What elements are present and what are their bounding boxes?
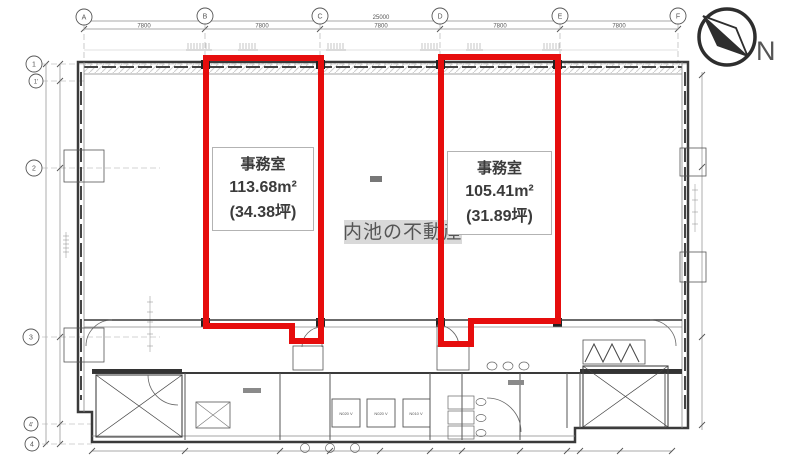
dim-bay-2: 7800: [255, 24, 269, 30]
toilet-fixtures: [301, 362, 530, 453]
dim-bay-5: 7800: [612, 24, 626, 30]
building-outline: [78, 60, 688, 442]
pad-label-3: N010 V: [409, 411, 423, 416]
compass: N: [699, 9, 776, 66]
dim-bay-4: 7800: [493, 24, 507, 30]
stairs: [583, 340, 645, 364]
room-type-left: 事務室: [240, 153, 285, 176]
dim-overall: 25000: [373, 15, 390, 21]
room-area-sqm-right: 105.41m²: [465, 180, 534, 205]
floor-plan-drawing: A B C D E F 1 1' 2 3 4' 4: [0, 0, 800, 456]
room-area-sqm-left: 113.68m²: [229, 176, 297, 201]
grid-bubble-1p: 1': [34, 80, 38, 86]
dim-bay-3: 7800: [374, 24, 388, 30]
grid-bubble-a: A: [82, 15, 87, 22]
core-partitions: [64, 148, 706, 440]
pad-label-2: N020 V: [374, 411, 388, 416]
grid-bubble-f: F: [676, 14, 680, 21]
room-type-right: 事務室: [477, 157, 522, 180]
grid-bubble-4p: 4': [29, 423, 33, 429]
grid-row-bubbles: 1 1' 2 3 4' 4: [23, 56, 43, 451]
floor-plan-page: A B C D E F 1 1' 2 3 4' 4: [0, 0, 800, 456]
watermark-text: 内池の不動産: [343, 221, 463, 243]
compass-needle-outline-icon: [703, 16, 748, 57]
grid-bubble-c: C: [317, 14, 322, 21]
grid-bubble-2: 2: [32, 166, 36, 173]
compass-north-label: N: [756, 36, 776, 66]
grid-bubble-1: 1: [32, 62, 36, 69]
room-label-left-unit: 事務室 113.68m² (34.38坪): [212, 147, 314, 231]
grid-bubble-4: 4: [30, 442, 34, 449]
room-label-right-unit: 事務室 105.41m² (31.89坪): [447, 151, 552, 235]
watermark: 内池の不動産: [343, 220, 463, 244]
room-area-tsubo-right: (31.89坪): [466, 205, 533, 230]
equipment-pads: N020 V N020 V N010 V: [332, 399, 430, 427]
grid-bubble-e: E: [558, 14, 563, 21]
dim-bay-1: 7800: [137, 24, 151, 30]
room-area-tsubo-left: (34.38坪): [230, 201, 297, 226]
grid-bubble-b: B: [203, 14, 208, 21]
micro-annotations: [63, 43, 698, 352]
grid-bubble-d: D: [437, 14, 442, 21]
grid-bubble-3: 3: [29, 335, 33, 342]
pad-label-1: N020 V: [339, 411, 353, 416]
x-rooms: [96, 366, 668, 437]
